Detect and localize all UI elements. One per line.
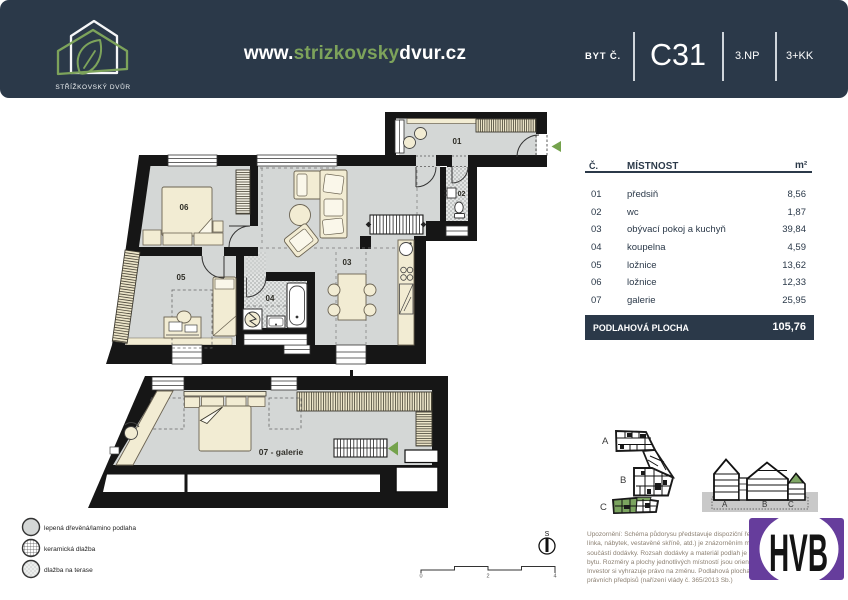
svg-text:0: 0 [419,574,422,580]
svg-text:dlažba na terase: dlažba na terase [44,567,93,574]
svg-text:A: A [722,500,728,509]
svg-text:B: B [620,475,626,486]
svg-text:A: A [602,436,609,447]
svg-text:2: 2 [486,574,489,580]
svg-text:02: 02 [458,191,466,198]
svg-text:HVB: HVB [769,524,828,580]
svg-text:4: 4 [553,574,556,580]
svg-text:C: C [600,502,607,513]
svg-text:07 - galerie: 07 - galerie [259,447,304,457]
svg-text:C: C [788,500,794,509]
svg-text:01: 01 [453,137,462,146]
svg-text:B: B [762,500,767,509]
svg-text:S: S [545,531,550,538]
svg-text:05: 05 [177,273,186,282]
svg-text:06: 06 [180,203,189,212]
svg-text:04: 04 [266,294,275,303]
svg-text:03: 03 [343,258,352,267]
svg-text:lepená dřevěná/lamino podlaha: lepená dřevěná/lamino podlaha [44,525,136,532]
svg-text:keramická dlažba: keramická dlažba [44,546,96,553]
